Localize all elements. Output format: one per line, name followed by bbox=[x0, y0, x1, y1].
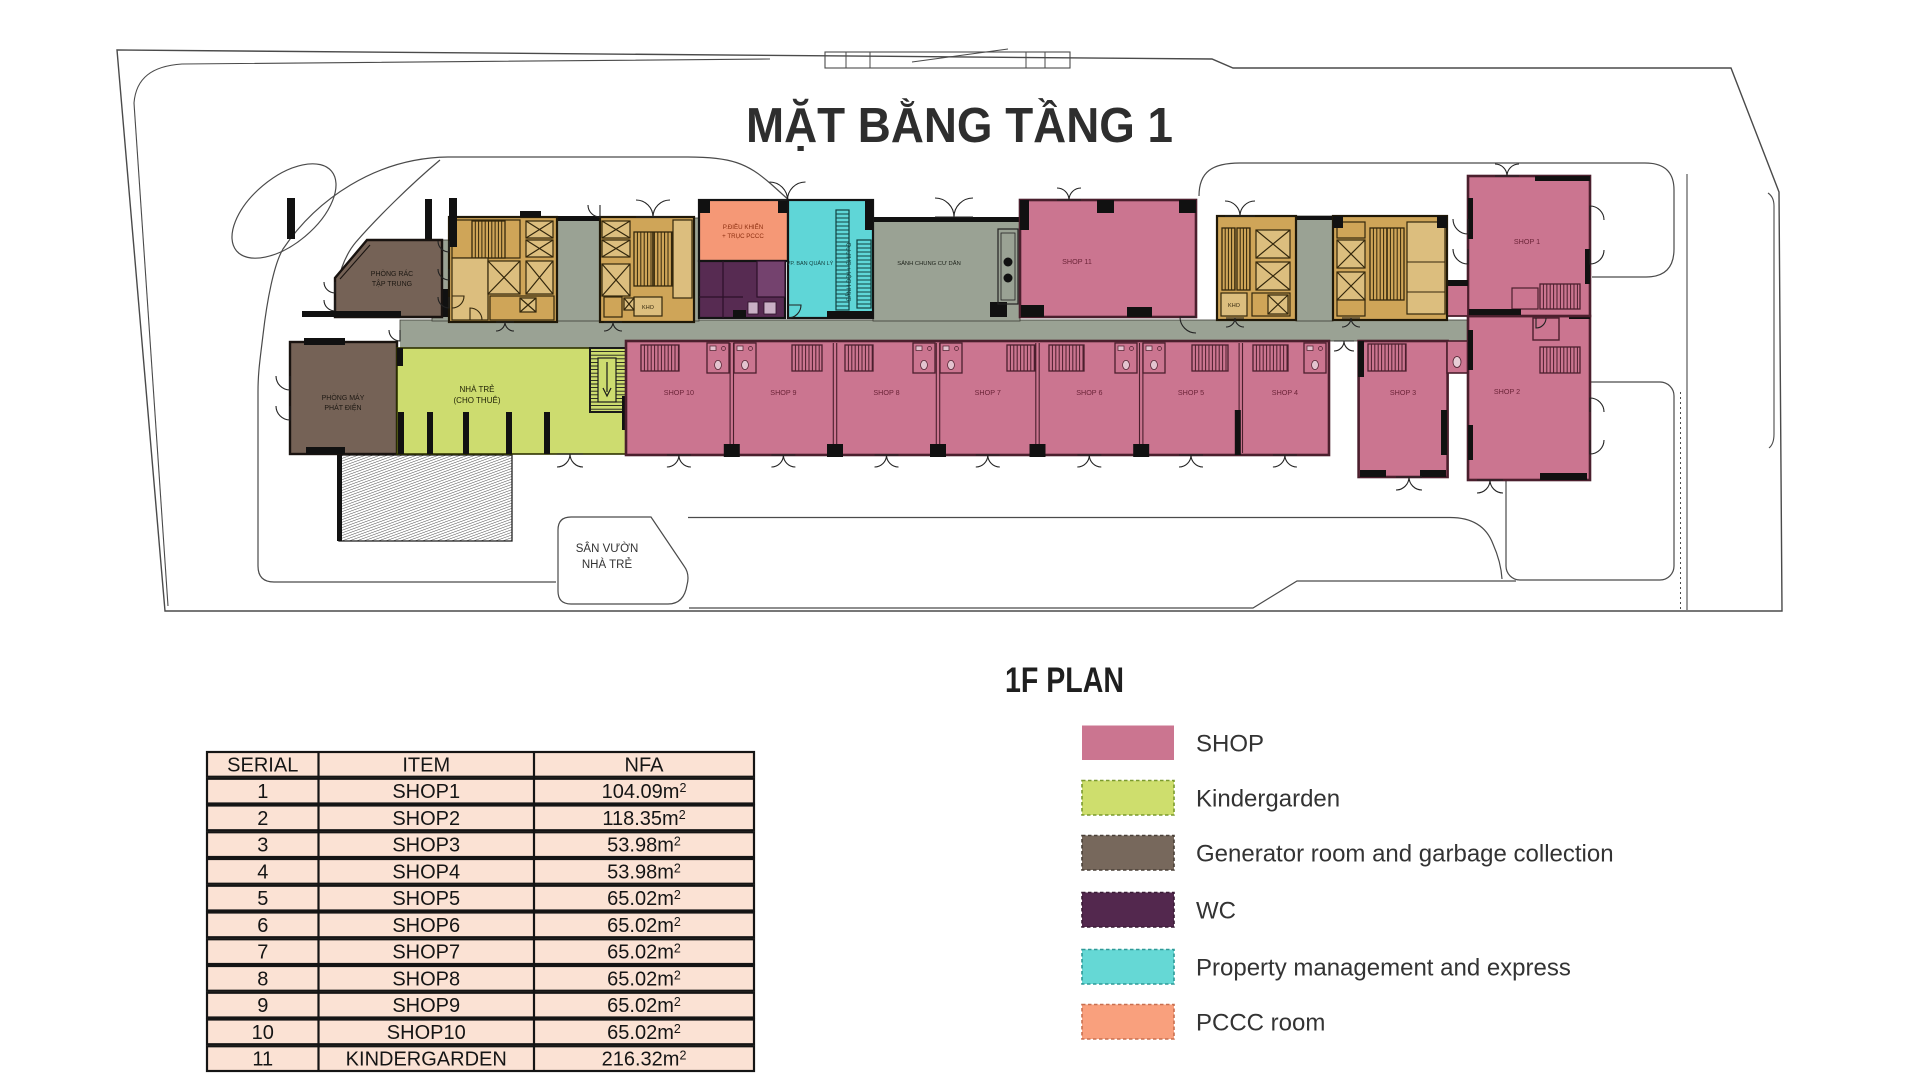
svg-text:1: 1 bbox=[257, 781, 268, 803]
svg-text:4: 4 bbox=[257, 861, 268, 883]
svg-text:5: 5 bbox=[257, 888, 268, 910]
svg-text:SHOP 11: SHOP 11 bbox=[1062, 257, 1092, 266]
svg-text:SHOP 6: SHOP 6 bbox=[1076, 388, 1102, 397]
svg-text:SHOP 2: SHOP 2 bbox=[1494, 387, 1520, 396]
svg-text:NHÀ TRẺ: NHÀ TRẺ bbox=[460, 385, 495, 394]
svg-text:P.ĐIỀU KHIỂN: P.ĐIỀU KHIỂN bbox=[723, 224, 763, 231]
svg-text:SHOP 3: SHOP 3 bbox=[1390, 388, 1416, 397]
svg-text:Kindergarden: Kindergarden bbox=[1196, 786, 1340, 813]
svg-text:1F PLAN: 1F PLAN bbox=[1005, 661, 1124, 700]
svg-text:53.98m2: 53.98m2 bbox=[607, 861, 681, 883]
svg-text:SHOP10: SHOP10 bbox=[387, 1022, 466, 1044]
svg-text:SHOP7: SHOP7 bbox=[392, 942, 460, 964]
svg-text:PHÒNG RÁC: PHÒNG RÁC bbox=[371, 269, 413, 278]
svg-text:SHOP2: SHOP2 bbox=[392, 808, 460, 830]
svg-text:NHÀ TRẺ: NHÀ TRẺ bbox=[582, 558, 633, 571]
svg-text:2: 2 bbox=[257, 808, 268, 830]
svg-text:SERIAL: SERIAL bbox=[227, 754, 298, 776]
svg-text:PHÒNG MÁY: PHÒNG MÁY bbox=[322, 393, 365, 402]
svg-text:65.02m2: 65.02m2 bbox=[607, 915, 681, 937]
svg-text:SHOP4: SHOP4 bbox=[392, 861, 460, 883]
svg-text:7: 7 bbox=[257, 942, 268, 964]
svg-text:9: 9 bbox=[257, 995, 268, 1017]
svg-text:Property management and expres: Property management and express bbox=[1196, 955, 1571, 982]
svg-text:SHOP 1: SHOP 1 bbox=[1514, 237, 1540, 246]
svg-text:3: 3 bbox=[257, 835, 268, 857]
svg-text:65.02m2: 65.02m2 bbox=[607, 968, 681, 990]
svg-text:SHOP6: SHOP6 bbox=[392, 915, 460, 937]
svg-text:SẢNH ĐỢI + SHIPPO: SẢNH ĐỢI + SHIPPO bbox=[846, 242, 853, 301]
svg-text:65.02m2: 65.02m2 bbox=[607, 942, 681, 964]
svg-text:SHOP 9: SHOP 9 bbox=[770, 388, 796, 397]
svg-text:65.02m2: 65.02m2 bbox=[607, 995, 681, 1017]
svg-text:10: 10 bbox=[252, 1022, 274, 1044]
svg-text:SHOP1: SHOP1 bbox=[392, 781, 460, 803]
svg-text:SHOP 4: SHOP 4 bbox=[1272, 388, 1298, 397]
svg-text:SẢNH CHUNG CƯ DÂN: SẢNH CHUNG CƯ DÂN bbox=[897, 260, 961, 267]
svg-text:MẶT BẰNG TẦNG 1: MẶT BẰNG TẦNG 1 bbox=[746, 99, 1173, 153]
svg-text:53.98m2: 53.98m2 bbox=[607, 835, 681, 857]
svg-text:6: 6 bbox=[257, 915, 268, 937]
svg-text:WC: WC bbox=[1196, 898, 1236, 925]
svg-text:SHOP 10: SHOP 10 bbox=[664, 388, 694, 397]
svg-text:SHOP 5: SHOP 5 bbox=[1178, 388, 1204, 397]
svg-text:TẬP TRUNG: TẬP TRUNG bbox=[372, 279, 412, 288]
svg-text:SHOP5: SHOP5 bbox=[392, 888, 460, 910]
svg-text:SHOP9: SHOP9 bbox=[392, 995, 460, 1017]
svg-text:PHÁT ĐIỆN: PHÁT ĐIỆN bbox=[324, 403, 361, 412]
svg-text:PCCC room: PCCC room bbox=[1196, 1010, 1325, 1037]
svg-text:SHOP: SHOP bbox=[1196, 731, 1264, 758]
svg-text:NFA: NFA bbox=[625, 754, 665, 776]
svg-text:SHOP3: SHOP3 bbox=[392, 835, 460, 857]
svg-text:65.02m2: 65.02m2 bbox=[607, 1022, 681, 1044]
svg-text:SHOP 7: SHOP 7 bbox=[975, 388, 1001, 397]
svg-text:SHOP8: SHOP8 bbox=[392, 968, 460, 990]
svg-text:(CHO THUÊ): (CHO THUÊ) bbox=[454, 396, 501, 405]
svg-text:SÂN VƯỜN: SÂN VƯỜN bbox=[576, 542, 639, 555]
svg-text:11: 11 bbox=[252, 1049, 273, 1071]
svg-text:Generator room and garbage col: Generator room and garbage collection bbox=[1196, 841, 1614, 868]
svg-text:KHO: KHO bbox=[642, 305, 655, 311]
svg-text:SHOP 8: SHOP 8 bbox=[873, 388, 899, 397]
svg-text:8: 8 bbox=[257, 968, 268, 990]
svg-text:ITEM: ITEM bbox=[402, 754, 450, 776]
svg-text:65.02m2: 65.02m2 bbox=[607, 888, 681, 910]
svg-text:104.09m2: 104.09m2 bbox=[602, 781, 687, 803]
svg-text:KHO: KHO bbox=[1228, 303, 1241, 309]
svg-text:VP. BAN QUẢN LÝ: VP. BAN QUẢN LÝ bbox=[787, 260, 834, 267]
svg-text:216.32m2: 216.32m2 bbox=[602, 1049, 687, 1071]
svg-text:+ TRỤC PCCC: + TRỤC PCCC bbox=[722, 233, 764, 240]
svg-text:KINDERGARDEN: KINDERGARDEN bbox=[346, 1049, 507, 1071]
svg-text:118.35m2: 118.35m2 bbox=[602, 808, 685, 830]
